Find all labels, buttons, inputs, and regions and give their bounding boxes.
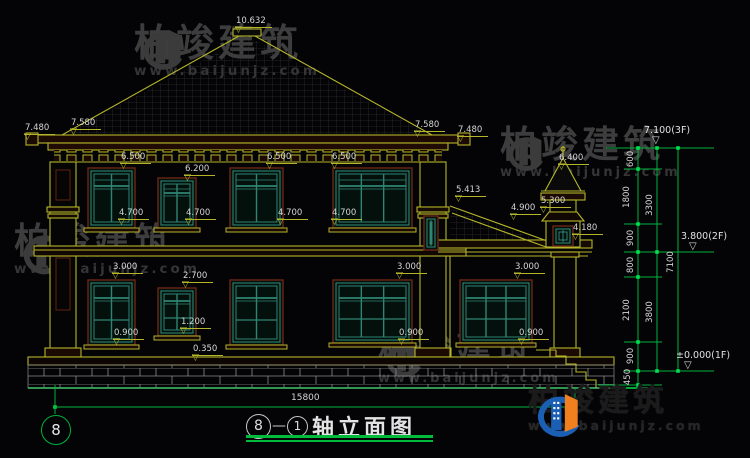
elevation-dim-label: 7.480: [457, 125, 488, 137]
elevation-dim-label: 6.500: [266, 152, 297, 164]
elevation-dim-label: 5.413: [455, 185, 486, 197]
elevation-dim-label: 10.632: [235, 16, 272, 28]
chain-dim-label: 900: [626, 348, 636, 364]
chain-dim-label: 800: [626, 257, 636, 273]
total-width-dim: 15800: [291, 393, 320, 403]
elevation-dim-label: 5.300: [540, 196, 571, 208]
chain-dim-label: 1800: [622, 186, 632, 208]
elevation-dim-label: 7.580: [70, 118, 101, 130]
title-underline-thin: [246, 440, 433, 442]
elevation-dim-label: 4.180: [572, 223, 603, 235]
level-dim-label: ±0.000(1F): [676, 350, 730, 361]
elevation-dim-label: 4.700: [185, 208, 216, 220]
level-dim-label: 7.100(3F): [644, 125, 690, 136]
chain-dim-label: 3300: [645, 194, 655, 216]
title-axis-end-bubble: 1: [287, 416, 308, 437]
chain-dim-label: 900: [626, 230, 636, 246]
elevation-dim-label: 4.900: [510, 203, 541, 215]
elevation-dim-label: 3.000: [396, 262, 427, 274]
elevation-dim-label: 7.480: [24, 123, 55, 135]
elevation-dim-label: 6.400: [558, 153, 589, 165]
elevation-dim-label: 0.900: [398, 328, 429, 340]
chain-dim-label: 450: [623, 369, 633, 385]
title-underline: [246, 435, 433, 438]
cad-elevation-drawing: 柏竣建筑 www.baijunjz.com 柏竣建筑 www.baijunjz.…: [0, 0, 750, 458]
elevation-dim-label: 1.200: [180, 317, 211, 329]
elevation-dim-label: 0.900: [113, 328, 144, 340]
elevation-dim-label: 3.000: [112, 262, 143, 274]
elevation-dim-label: 0.900: [518, 328, 549, 340]
grid-axis-bubble: 8: [41, 415, 71, 445]
chain-dim-label: 600: [626, 151, 636, 167]
elevation-dim-label: 6.500: [120, 152, 151, 164]
elevation-dim-label: 6.500: [331, 152, 362, 164]
elevation-dim-label: 4.700: [331, 208, 362, 220]
chain-dim-label: 2100: [622, 299, 632, 321]
elevation-dim-label: 0.350: [192, 344, 223, 356]
elevation-dim-label: 4.700: [277, 208, 308, 220]
elevation-dim-label: 6.200: [184, 164, 215, 176]
label-layer: 10.6327.4807.5807.5807.4806.5006.2006.50…: [0, 0, 750, 458]
title-separator: —: [272, 418, 286, 434]
elevation-dim-label: 3.000: [514, 262, 545, 274]
elevation-dim-label: 7.580: [414, 120, 445, 132]
elevation-dim-label: 4.700: [118, 208, 149, 220]
level-dim-label: 3.800(2F): [681, 231, 727, 242]
chain-dim-label: 7100: [666, 251, 676, 273]
chain-dim-label: 3800: [645, 301, 655, 323]
elevation-dim-label: 2.700: [182, 271, 213, 283]
